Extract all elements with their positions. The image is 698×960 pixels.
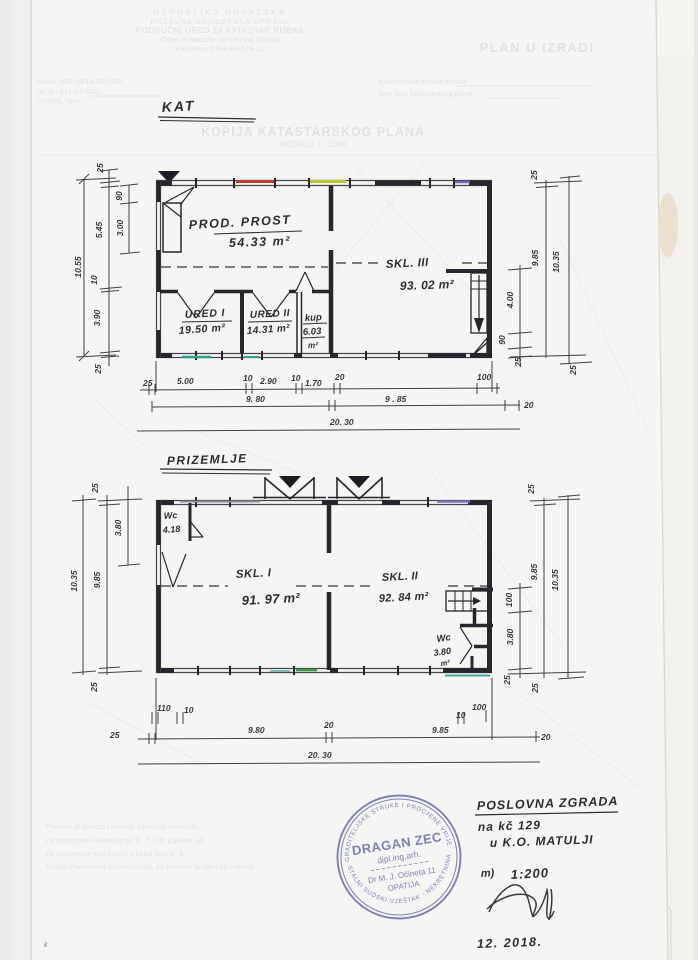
svg-text:Odjel za katastar nekretnina O: Odjel za katastar nekretnina Opatija bbox=[160, 35, 280, 44]
svg-text:25: 25 bbox=[530, 683, 540, 694]
svg-text:10: 10 bbox=[184, 705, 194, 715]
svg-text:PRIZEMLJE: PRIZEMLJE bbox=[167, 451, 248, 468]
svg-text:PLAN U IZRADI: PLAN U IZRADI bbox=[480, 40, 595, 55]
svg-text:25: 25 bbox=[109, 730, 120, 740]
svg-text:3.80: 3.80 bbox=[505, 628, 515, 645]
svg-text:110: 110 bbox=[157, 703, 171, 713]
svg-text:m²: m² bbox=[308, 341, 318, 350]
svg-text:3.80: 3.80 bbox=[113, 519, 123, 536]
svg-text:5.45: 5.45 bbox=[94, 221, 104, 238]
svg-text:za prostorne evidencije po čl.: za prostorne evidencije po čl. 7. i 35 Z… bbox=[46, 836, 203, 845]
svg-text:3.90: 3.90 bbox=[92, 309, 102, 326]
svg-text:10.55: 10.55 bbox=[73, 256, 83, 278]
svg-text:Katastarska općina Matulji: Katastarska općina Matulji bbox=[379, 77, 467, 86]
svg-text:m): m) bbox=[481, 867, 495, 880]
svg-text:90: 90 bbox=[114, 191, 124, 201]
svg-text:Opatija, Rpis: Opatija, Rpis bbox=[37, 96, 80, 105]
svg-text:kup: kup bbox=[305, 312, 323, 324]
svg-text:20. 30: 20. 30 bbox=[307, 750, 332, 760]
svg-text:25: 25 bbox=[93, 364, 103, 375]
svg-text:20: 20 bbox=[334, 372, 345, 382]
svg-text:PODRUČNI URED ZA KATASTAR RIJE: PODRUČNI URED ZA KATASTAR RIJEKA bbox=[136, 26, 305, 35]
svg-text:Kapetana Tome Blažine 12: Kapetana Tome Blažine 12 bbox=[175, 44, 265, 53]
svg-text:25: 25 bbox=[95, 163, 105, 174]
svg-text:9.80: 9.80 bbox=[248, 725, 265, 735]
svg-text:10.35: 10.35 bbox=[551, 251, 561, 273]
svg-text:10: 10 bbox=[89, 275, 99, 285]
svg-text:10.35: 10.35 bbox=[69, 570, 79, 592]
svg-text:25: 25 bbox=[526, 484, 536, 495]
svg-text:9. 80: 9. 80 bbox=[246, 394, 265, 404]
svg-text:1.70: 1.70 bbox=[305, 378, 322, 388]
svg-text:100: 100 bbox=[477, 372, 491, 382]
svg-text:3.00: 3.00 bbox=[115, 219, 125, 236]
svg-text:10: 10 bbox=[243, 373, 253, 383]
svg-text:20: 20 bbox=[323, 720, 334, 730]
svg-text:Wc: Wc bbox=[163, 510, 177, 521]
svg-text:KOPIJA KATASTARSKOG PLANA: KOPIJA KATASTARSKOG PLANA bbox=[201, 125, 425, 139]
svg-text:4.00: 4.00 bbox=[505, 291, 515, 309]
svg-text:25: 25 bbox=[568, 365, 578, 376]
svg-text:2.90: 2.90 bbox=[259, 376, 277, 386]
svg-text:KAT: KAT bbox=[161, 97, 196, 115]
svg-text:10: 10 bbox=[291, 373, 301, 383]
svg-text:Wc: Wc bbox=[436, 632, 452, 645]
svg-text:Broj lista katastarskog plana: Broj lista katastarskog plana bbox=[379, 89, 474, 98]
svg-text:20: 20 bbox=[523, 400, 534, 410]
svg-text:9 . 85: 9 . 85 bbox=[385, 394, 407, 404]
svg-text:SKL. I: SKL. I bbox=[236, 567, 272, 581]
svg-text:54.33 m²: 54.33 m² bbox=[229, 234, 291, 250]
svg-text:9.85: 9.85 bbox=[530, 249, 540, 266]
svg-text:1:200: 1:200 bbox=[510, 865, 549, 882]
svg-text:100: 100 bbox=[504, 593, 514, 607]
svg-text:URED I: URED I bbox=[185, 307, 226, 321]
svg-text:9.85: 9.85 bbox=[529, 563, 539, 580]
svg-text:URED II: URED II bbox=[250, 308, 291, 321]
svg-text:Kopija Prostornog urbanističko: Kopija Prostornog urbanističkog, za kata… bbox=[46, 862, 253, 871]
svg-text:4.18: 4.18 bbox=[161, 524, 180, 535]
svg-text:25: 25 bbox=[529, 170, 539, 181]
svg-text:91. 97 m²: 91. 97 m² bbox=[241, 590, 300, 608]
svg-text:DRŽAVNA GEODETSKA UPRAVA: DRŽAVNA GEODETSKA UPRAVA bbox=[150, 17, 289, 26]
svg-text:Ur. br: 541-17-03/1: Ur. br: 541-17-03/1 bbox=[37, 87, 100, 96]
svg-text:6.03: 6.03 bbox=[303, 326, 323, 338]
svg-text:10: 10 bbox=[456, 710, 466, 720]
svg-text:9.85: 9.85 bbox=[92, 571, 102, 588]
svg-text:9.85: 9.85 bbox=[432, 725, 449, 735]
svg-text:na kč 129: na kč 129 bbox=[478, 818, 541, 834]
svg-text:100: 100 bbox=[472, 702, 486, 712]
svg-text:REPUBLIKA HRVATSKA: REPUBLIKA HRVATSKA bbox=[153, 8, 286, 17]
svg-text:Klasa: 935-05/18-02/1287: Klasa: 935-05/18-02/1287 bbox=[37, 77, 123, 86]
svg-text:93. 02 m²: 93. 02 m² bbox=[400, 277, 455, 293]
svg-text:za poslovanje koji sadrži u kn: za poslovanje koji sadrži u knjizi pod b… bbox=[46, 849, 184, 858]
svg-text:Presliku je izradio i ovjerio:: Presliku je izradio i ovjerio: zavodski … bbox=[46, 822, 197, 831]
svg-text:SKL. II: SKL. II bbox=[382, 570, 420, 584]
svg-text:MJERILO 1 : 1000: MJERILO 1 : 1000 bbox=[280, 140, 346, 149]
svg-text:5.00: 5.00 bbox=[177, 376, 194, 386]
svg-text:20: 20 bbox=[540, 732, 551, 742]
svg-text:25: 25 bbox=[89, 682, 99, 693]
svg-text:20. 30: 20. 30 bbox=[329, 417, 354, 427]
svg-text:90: 90 bbox=[497, 335, 507, 345]
svg-text:k: k bbox=[44, 942, 48, 949]
svg-text:25: 25 bbox=[502, 675, 512, 686]
svg-text:m²: m² bbox=[440, 658, 451, 668]
svg-text:10.35: 10.35 bbox=[550, 569, 560, 591]
svg-text:12. 2018.: 12. 2018. bbox=[477, 935, 543, 951]
svg-text:25: 25 bbox=[513, 357, 523, 368]
svg-text:SKL. III: SKL. III bbox=[386, 257, 430, 271]
svg-text:25: 25 bbox=[90, 483, 100, 494]
svg-text:25: 25 bbox=[142, 378, 153, 388]
